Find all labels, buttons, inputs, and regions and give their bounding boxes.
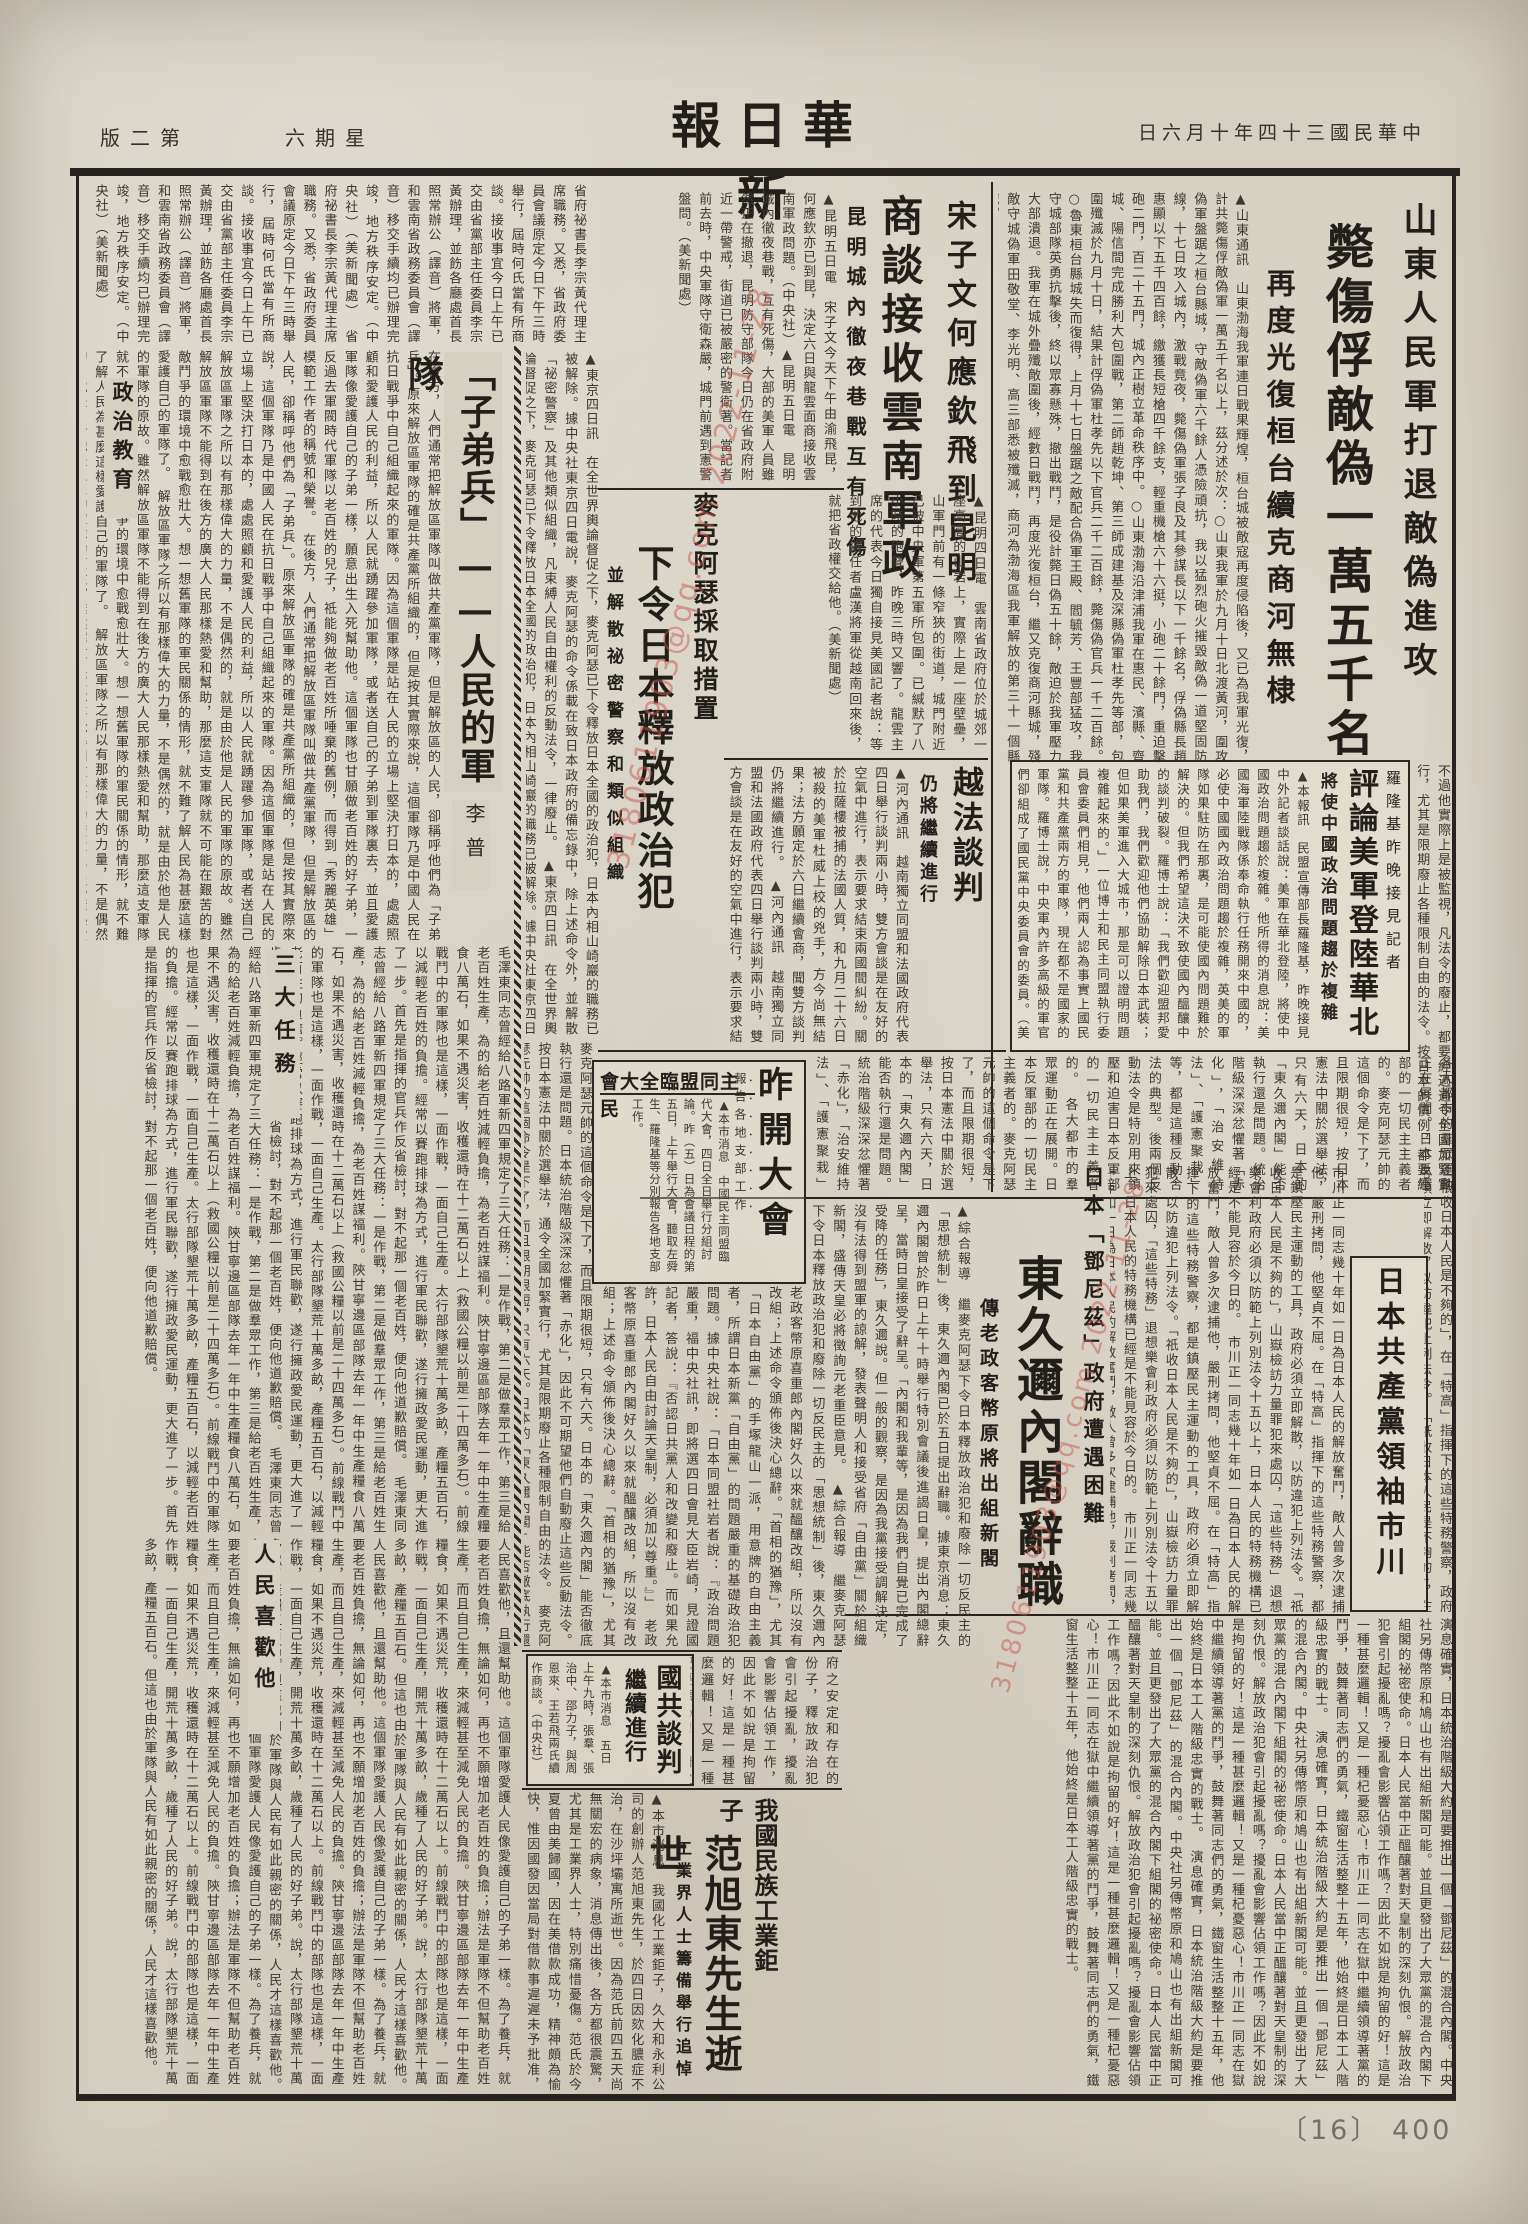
mengmeng-body: ▲本市消息 中國民主同盟臨代大會，四日全日舉行分組討論。昨（五）日為會議日程的第… [600, 1098, 732, 1274]
yuefa-subhead: 仍將繼續進行 [914, 774, 940, 934]
divider-h2 [724, 758, 988, 760]
right-edge-col: 「祇收日本人民是不夠的」，在「特高」指揮下的這些特務警察，政府必須立即解散，以防… [1424, 1166, 1454, 1614]
essay-subhead-1: 政治教育 [104, 378, 138, 518]
divider-h3 [598, 1050, 1006, 1052]
ichikawa-headline: 日本共產黨領袖市川 [1370, 1266, 1410, 1602]
guogong-headline2: 繼續進行 [620, 1668, 650, 1776]
guogong-box: 國共談判 繼續進行 ▲本市消息 五日上午九時，張羣、張治中、邵力子，與周恩來、王… [526, 1654, 694, 1786]
fanxudong-kicker: 我國民族工業鉅子 [746, 1798, 782, 1986]
luolongji-box: 羅隆基昨晚接見記者 評論美軍登陸華北 將使中國政治問題趨於複雜 ▲本報訊 民盟宣… [1010, 760, 1410, 1052]
dongjiuer-subhead: 傳老政客幣原將出組新閣 [974, 1298, 1002, 1636]
guogong-body: ▲本市消息 五日上午九時，張羣、張治中、邵力子，與周恩來、王若飛兩氏續作商談。（… [532, 1662, 614, 1776]
masthead-date: 日六月十年四十三國民華中 [1138, 118, 1428, 148]
essay-subhead-3: 人民喜歡他 [248, 1540, 280, 1734]
macarthur-subhead: 並解散祕密警察和類似組織 [602, 566, 626, 1042]
main-headline-line3: 再度光復桓台續克商河無棣 [1254, 268, 1300, 796]
yuefa-body: ▲河內通訊 越南獨立同盟和法國政府代表四日舉行談判兩小時，雙方會談是在友好的空氣… [724, 766, 910, 1044]
dongjiuer-body: ▲綜合報導 繼麥克阿瑟下令日本釋放政治犯和廢除一切反民主的「思想統制」後，東久邇… [810, 1204, 972, 1648]
divider-zigzag [514, 346, 521, 1646]
fanxudong-body: ▲本市消息 我國化工業鉅子，久大和永利公司的創辦人范旭東先生，於四日因欬化膿症不… [526, 1792, 666, 2092]
dongjiuer-headline: 東久邇內閣辭職 [1006, 1254, 1070, 1622]
mengmeng-box: 會大全臨盟同主民 昨開大會 報告各地支部工作 ▲本市消息 中國民主同盟臨代大會，… [592, 1060, 806, 1284]
top-left-band: 省府祕書長李宗黃代理主席職務。又悉，省政府委員會議原定今日下午三時舉行，屆時何氏… [86, 184, 588, 344]
essay-body4: 人民喜歡他，且還幫助他。這個軍隊愛護人民像愛護自己的子弟一樣。為了養兵，就要老百… [86, 1538, 512, 2086]
archive-number: 〔16〕 400 [1280, 2108, 1490, 2148]
luolongji-subhead: 將使中國政治問題趨於複雜 [1316, 772, 1340, 1042]
mengmeng-kicker: 報告各地支部工作 [736, 1072, 754, 1254]
mengmeng-headline: 昨開大會 [758, 1066, 798, 1274]
macarthur-body: ▲東京四日訊 在全世界輿論督促之下，麥克阿瑟已下令釋放日本全國的政治犯，日本內相… [526, 352, 600, 1036]
band-bottom-right: 演息確實，日本統治階級大約是要推出一個「鄧尼茲」的混合內閣。中央社另傳幣原和鳩山… [810, 1618, 1454, 2088]
yuefa-headline: 越法談判 [944, 766, 988, 918]
masthead-title: 報日華新 [640, 86, 900, 160]
masthead-rule [70, 168, 1460, 176]
masthead-edition: 版二第 [100, 122, 210, 150]
macarthur-headline: 下令日本釋放政治犯 [630, 544, 680, 918]
essay-body1: 在後方，人們通常把解放區軍隊叫做共產黨軍隊，但是解放區的人民，卻稱呼他們為「子弟… [238, 350, 442, 942]
divider-h7 [522, 1788, 842, 1790]
main-headline: 斃傷俘敵偽一萬五千名 [1314, 222, 1380, 770]
macarthur-kicker: 麥克阿瑟採取措置 [684, 492, 722, 727]
band-center-mid: 府之安定和存在的份子，釋放政治犯會引起擾亂，擾亂會影響佔領工作，因此不如說是拘留… [690, 1656, 840, 1786]
fanxudong-headline: 范旭東先生逝世 [698, 1834, 748, 2098]
main-body: ▲山東通訊 山東渤海我軍連日戰果輝煌，桓台城被敵寇再度侵陷後，又已為我軍光復，計… [998, 192, 1250, 764]
macarthur-body2: 麥克阿瑟元帥的這個命令是下了，而且限期很短，只有六天。日本的「東久邇內閣」能否徹… [524, 1042, 594, 1648]
frame-left [76, 168, 79, 2101]
band-right-mid: 市川正一同志幾十年如一日為日本人民的解放奮鬥，敵人曾多次逮捕他，嚴刑拷問，他堅貞… [1110, 1166, 1346, 1614]
newspaper-page: 報日華新 日六月十年四十三國民華中 六期星 版二第 山東人民軍打退敵偽進攻 斃傷… [0, 0, 1528, 2224]
divider-h1 [598, 488, 844, 490]
fanxudong-subhead: 工業界人士籌備舉行追悼 [670, 1840, 694, 2116]
luolongji-kicker: 羅隆基昨晚接見記者 [1384, 770, 1404, 1042]
kunming-body-cont: ▲昆明四日電 雲南省政府位於城郊一座高高的山岩上，實際上是一座壁壘，山軍門前有一… [724, 494, 988, 752]
guogong-headline: 國共談判 [652, 1664, 686, 1776]
ichikawa-box: 日本共產黨領袖市川 [1350, 1256, 1428, 1612]
kunming-body: ▲昆明五日電 宋子文今天下午由渝飛昆，何應欽亦已到昆，決定六日與龍雲面商接收雲南… [598, 192, 838, 482]
luolongji-headline: 評論美軍登陸華北 [1342, 768, 1382, 1046]
masthead-weekday: 六期星 [285, 122, 395, 150]
divider-vertical-right [991, 182, 993, 1192]
dongjiuer-kicker: 日本「鄧尼茲」政府遭遇困難 [1078, 1166, 1108, 1578]
essay-title: 「子弟兵」——人民的軍隊 [444, 352, 502, 792]
divider-h6 [522, 1650, 842, 1652]
essay-byline: 李普 [452, 800, 490, 890]
main-headline-line1: 山東人民軍打退敵偽進攻 [1398, 202, 1442, 762]
essay-subhead-2: 三大任務 [266, 950, 300, 1118]
dongjiuer-body2: 老政客幣原喜重郎內閣好久以來就醞釀改組，所以沒有改組；上述命令頒佈後決心總辭。「… [596, 1286, 804, 1648]
luolongji-body: ▲本報訊 民盟宣傳部長羅隆基，昨晚接見中外記者談話說：美軍在華北登陸，將使中國政… [1018, 768, 1312, 1040]
frame-bottom [76, 2094, 1456, 2101]
